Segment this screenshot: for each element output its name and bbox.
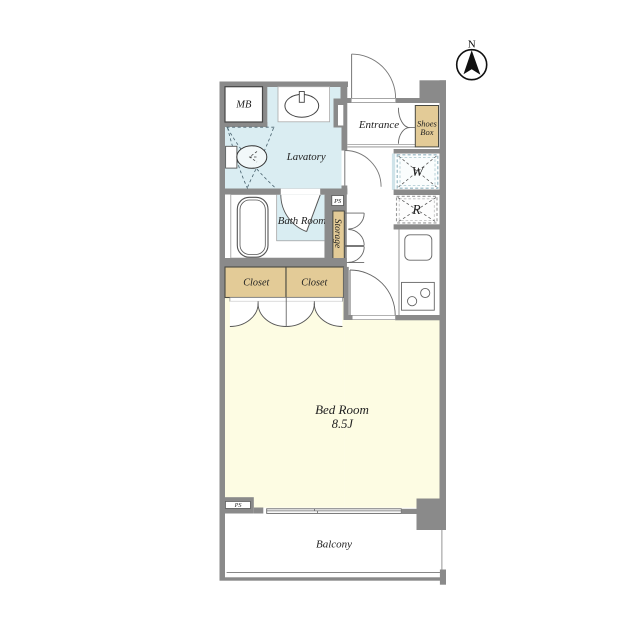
svg-text:Box: Box (420, 127, 433, 137)
svg-text:Entrance: Entrance (358, 119, 399, 131)
svg-text:Closet: Closet (243, 277, 270, 288)
svg-text:PS: PS (333, 198, 342, 205)
svg-text:R: R (411, 202, 421, 217)
svg-text:MB: MB (235, 100, 252, 111)
svg-text:Closet: Closet (301, 277, 328, 288)
svg-text:8.5J: 8.5J (332, 417, 355, 431)
svg-text:N: N (468, 39, 476, 51)
svg-text:Bath Room: Bath Room (278, 215, 326, 227)
svg-text:Bed Room: Bed Room (315, 402, 369, 417)
svg-text:PS: PS (234, 502, 242, 509)
svg-text:Lavatory: Lavatory (286, 151, 326, 163)
svg-text:W: W (412, 165, 425, 180)
svg-text:Storage: Storage (332, 219, 342, 249)
svg-text:Balcony: Balcony (316, 539, 352, 551)
